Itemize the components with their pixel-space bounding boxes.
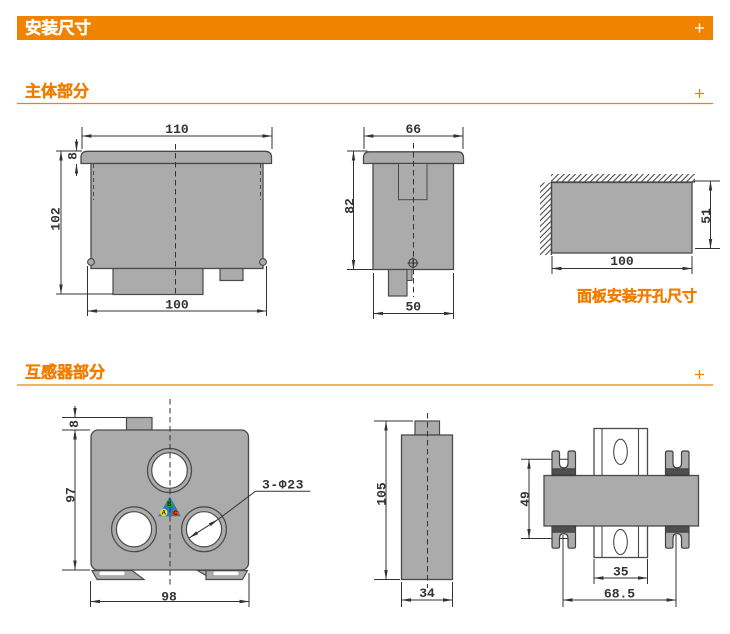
svg-text:35: 35 bbox=[613, 565, 629, 580]
svg-text:97: 97 bbox=[64, 487, 79, 503]
svg-text:50: 50 bbox=[405, 300, 421, 315]
svg-text:98: 98 bbox=[161, 590, 177, 605]
svg-text:66: 66 bbox=[405, 122, 421, 137]
svg-text:主体部分: 主体部分 bbox=[25, 82, 89, 101]
svg-text:110: 110 bbox=[165, 122, 189, 137]
svg-text:互感器部分: 互感器部分 bbox=[25, 363, 105, 382]
svg-text:3-Φ23: 3-Φ23 bbox=[262, 478, 304, 493]
svg-text:8: 8 bbox=[65, 152, 80, 160]
svg-text:A: A bbox=[162, 511, 167, 517]
svg-text:100: 100 bbox=[165, 298, 189, 313]
svg-text:102: 102 bbox=[49, 207, 64, 231]
svg-text:51: 51 bbox=[699, 208, 714, 224]
svg-text:C: C bbox=[173, 511, 178, 517]
svg-text:100: 100 bbox=[610, 254, 634, 269]
svg-text:68.5: 68.5 bbox=[604, 587, 635, 602]
svg-text:34: 34 bbox=[419, 586, 435, 601]
svg-text:105: 105 bbox=[375, 482, 390, 506]
svg-text:49: 49 bbox=[518, 491, 533, 507]
svg-text:82: 82 bbox=[342, 198, 357, 214]
svg-text:8: 8 bbox=[67, 420, 82, 428]
svg-text:安装尺寸: 安装尺寸 bbox=[25, 18, 91, 38]
svg-text:面板安装开孔尺寸: 面板安装开孔尺寸 bbox=[577, 287, 697, 305]
